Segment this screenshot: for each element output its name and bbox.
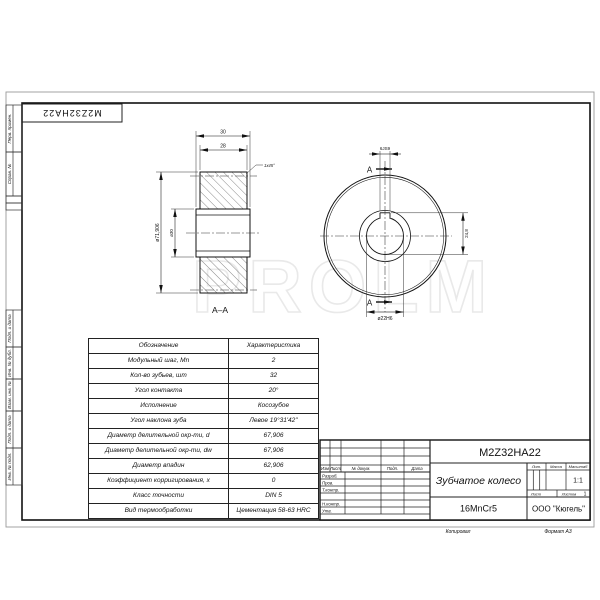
change-header-izm: Изм xyxy=(321,466,329,471)
material-text: 16MnCr5 xyxy=(460,504,497,514)
spec-header-characteristic: Характеристика xyxy=(229,339,319,354)
spec-value: 2 xyxy=(229,354,319,369)
spec-param: Исполнение xyxy=(89,399,229,414)
sign-label: Утв. xyxy=(322,509,332,514)
spec-value: DIN 5 xyxy=(229,489,319,504)
spec-param: Диаметр делительной окр-ти, dw xyxy=(89,444,229,459)
margin-label: Инв. № подл. xyxy=(7,453,12,481)
change-header-sign: Подп. xyxy=(387,466,398,471)
margin-column: Перв. примен. Справ. № Подп. и дата Инв.… xyxy=(6,105,22,485)
margin-box: Справ. № xyxy=(6,152,22,196)
section-mark-bottom: А xyxy=(367,299,392,308)
margin-box: Взам. инв. № xyxy=(6,379,22,411)
dim-text: 30 xyxy=(220,130,226,136)
spec-row: Класс точностиDIN 5 xyxy=(89,489,319,504)
spec-row: Кол-во зубьев, шт32 xyxy=(89,369,319,384)
top-stamp: M2Z32HA22 xyxy=(22,104,122,122)
spec-value: 32 xyxy=(229,369,319,384)
spec-row: ИсполнениеКосозубое xyxy=(89,399,319,414)
spec-row: Диаметр делительной окр-ти, d67,906 xyxy=(89,429,319,444)
mass-label: Масса xyxy=(550,464,563,469)
spec-param: Вид термообработки xyxy=(89,504,229,519)
sign-label: Разраб. xyxy=(322,474,338,479)
sign-label: Пров. xyxy=(322,481,333,486)
margin-box: Инв. № дубл. xyxy=(6,347,22,379)
designation-text: M2Z32HA22 xyxy=(479,447,541,459)
front-view: А А 6JS9 24,8 xyxy=(320,146,469,322)
spec-header-row: Обозначение Характеристика xyxy=(89,339,319,354)
margin-empty-box xyxy=(6,196,22,210)
spec-param: Диаметр делительной окр-ти, d xyxy=(89,429,229,444)
footer-copied: Копировал xyxy=(446,529,471,535)
spec-value: 20° xyxy=(229,384,319,399)
spec-param: Угол контакта xyxy=(89,384,229,399)
dim-keyway-depth: 24,8 xyxy=(388,213,469,255)
gear-rim-bottom xyxy=(200,257,247,293)
section-view: 1x45° 30 28 ø71,906 xyxy=(155,130,275,316)
change-header-date: Дата xyxy=(410,466,423,471)
company-text: ООО "Кюгель" xyxy=(532,505,585,514)
dim-text: ø30 xyxy=(169,229,174,237)
spec-param: Модульный шаг, Mn xyxy=(89,354,229,369)
dim-text: 24,8 xyxy=(464,229,469,238)
section-label: А–А xyxy=(212,305,228,315)
spec-value: 67,906 xyxy=(229,429,319,444)
chamfer-note: 1x45° xyxy=(246,163,275,174)
spec-row: Угол контакта20° xyxy=(89,384,319,399)
dim-text: 6JS9 xyxy=(380,146,391,151)
dim-tip-diameter: ø71,906 xyxy=(155,172,198,293)
spec-value: Левое 19°31'42" xyxy=(229,414,319,429)
sheet-footer: Копировал Формат А3 xyxy=(446,529,572,535)
spec-row: Угол наклона зубаЛевое 19°31'42" xyxy=(89,414,319,429)
sheet-label: Лист xyxy=(530,492,542,497)
dim-width-28: 28 xyxy=(200,144,247,171)
lit-label: Лит. xyxy=(531,464,541,469)
sign-label: Т.контр. xyxy=(322,488,339,493)
spec-param: Диаметр впадин xyxy=(89,459,229,474)
spec-value: Косозубое xyxy=(229,399,319,414)
spec-row: Диаметр впадин62,906 xyxy=(89,459,319,474)
dim-text: ø71,906 xyxy=(155,223,161,242)
margin-label: Подп. и дата xyxy=(7,314,12,343)
drawing-page: PROLM Перв. примен. Справ. № xyxy=(0,0,600,600)
margin-label: Перв. примен. xyxy=(7,114,12,144)
spec-row: Коэффициент корригирования, х0 xyxy=(89,474,319,489)
change-header-doc: № докум. xyxy=(352,466,371,471)
footer-format: Формат А3 xyxy=(544,529,572,535)
spec-param: Класс точности xyxy=(89,489,229,504)
spec-param: Коэффициент корригирования, х xyxy=(89,474,229,489)
spec-param: Угол наклона зуба xyxy=(89,414,229,429)
margin-box: Подп. и дата xyxy=(6,411,22,448)
section-mark-top: А xyxy=(367,166,392,175)
spec-value: Цементация 58-63 HRC xyxy=(229,504,319,519)
spec-row: Модульный шаг, Mn2 xyxy=(89,354,319,369)
scale-label: Масштаб xyxy=(569,464,588,469)
scale-value: 1:1 xyxy=(573,478,583,485)
spec-value: 67,906 xyxy=(229,444,319,459)
dim-bore-diameter: ø22H6 xyxy=(367,238,404,322)
title-block: Изм Лист № докум. Подп. Дата Разраб. Про… xyxy=(320,440,590,520)
sheets-label: Листов xyxy=(561,492,577,497)
spec-param: Кол-во зубьев, шт xyxy=(89,369,229,384)
margin-box: Перв. примен. xyxy=(6,105,22,152)
spec-table: Обозначение Характеристика Модульный шаг… xyxy=(88,338,319,519)
dim-text: ø22H6 xyxy=(377,316,392,322)
spec-row: Диаметр делительной окр-ти, dw67,906 xyxy=(89,444,319,459)
chamfer-note-text: 1x45° xyxy=(264,163,275,168)
margin-box: Инв. № подл. xyxy=(6,448,22,485)
margin-label: Справ. № xyxy=(7,164,12,185)
margin-label: Взам. инв. № xyxy=(7,381,12,409)
gear-rim-top xyxy=(200,172,247,209)
section-mark-letter: А xyxy=(367,299,373,308)
section-mark-letter: А xyxy=(367,166,373,175)
spec-header-designation: Обозначение xyxy=(89,339,229,354)
part-name-text: Зубчатое колесо xyxy=(436,475,521,487)
sheets-value: 1 xyxy=(584,492,587,498)
spec-value: 0 xyxy=(229,474,319,489)
dim-text: 28 xyxy=(220,144,226,150)
margin-label: Подп. и дата xyxy=(7,415,12,444)
margin-box: Подп. и дата xyxy=(6,310,22,347)
spec-value: 62,906 xyxy=(229,459,319,474)
sign-label: Н.контр. xyxy=(322,502,340,507)
top-stamp-text: M2Z32HA22 xyxy=(42,108,102,118)
spec-row: Вид термообработкиЦементация 58-63 HRC xyxy=(89,504,319,519)
margin-label: Инв. № дубл. xyxy=(7,349,12,377)
change-header-list: Лист xyxy=(329,466,341,471)
